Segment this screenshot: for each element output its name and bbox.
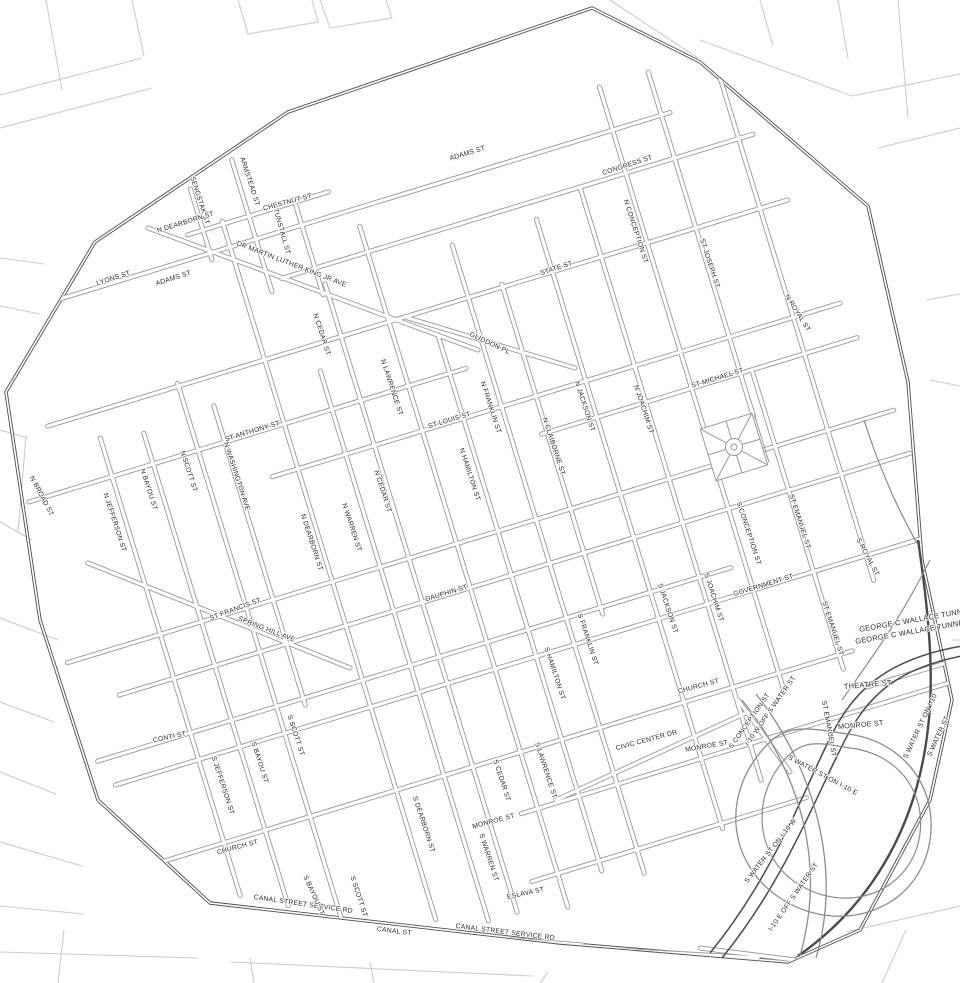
map-stage: ADAMS STCONGRESS STN CONCEPTION STSTATE … bbox=[0, 0, 960, 983]
city-street-map[interactable]: ADAMS STCONGRESS STN CONCEPTION STSTATE … bbox=[0, 0, 960, 983]
